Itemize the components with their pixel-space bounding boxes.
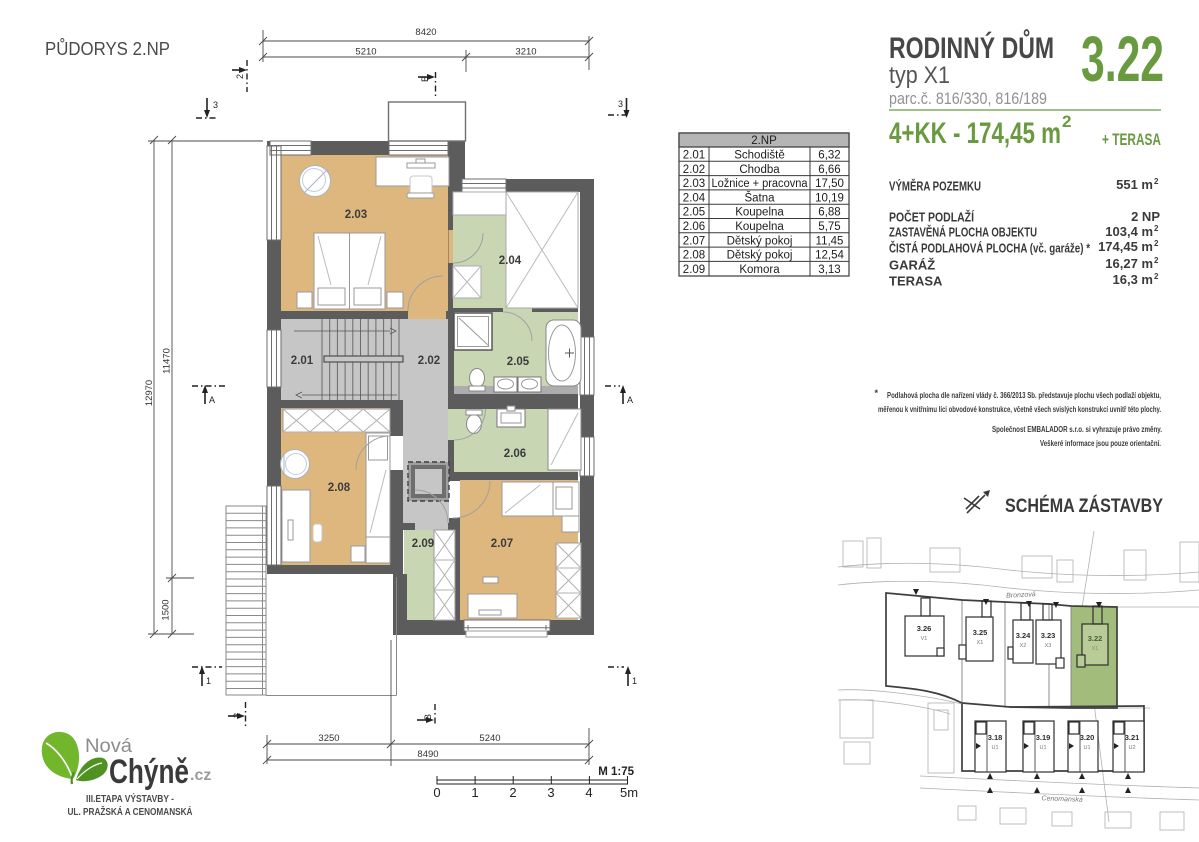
svg-text:U2: U2 bbox=[1128, 745, 1135, 751]
svg-text:VÝMĚRA POZEMKU: VÝMĚRA POZEMKU bbox=[889, 179, 981, 194]
svg-text:2.08: 2.08 bbox=[328, 482, 351, 494]
svg-text:2.08: 2.08 bbox=[683, 250, 705, 262]
svg-text:3.19: 3.19 bbox=[1036, 733, 1051, 742]
svg-text:SCHÉMA ZÁSTAVBY: SCHÉMA ZÁSTAVBY bbox=[1005, 495, 1163, 517]
svg-text:Veškeré informace jsou pouze o: Veškeré informace jsou pouze orientační. bbox=[1040, 439, 1161, 448]
svg-text:3.23: 3.23 bbox=[1041, 631, 1056, 640]
svg-text:3210: 3210 bbox=[515, 47, 536, 58]
svg-text:Dětský pokoj: Dětský pokoj bbox=[727, 250, 793, 262]
svg-text:11470: 11470 bbox=[162, 348, 173, 374]
svg-text:U1: U1 bbox=[1083, 745, 1090, 751]
svg-text:Společnost EMBALADOR s.r.o. si: Společnost EMBALADOR s.r.o. si vyhrazuje… bbox=[992, 425, 1162, 434]
svg-text:5,75: 5,75 bbox=[818, 221, 840, 233]
svg-text:ZASTAVĚNÁ PLOCHA OBJEKTU: ZASTAVĚNÁ PLOCHA OBJEKTU bbox=[889, 225, 1037, 240]
svg-text:B: B bbox=[420, 76, 430, 82]
svg-text:měřenou k vnitřnímu líci obvod: měřenou k vnitřnímu líci obvodové konstr… bbox=[878, 405, 1161, 414]
svg-text:0: 0 bbox=[433, 785, 440, 800]
svg-text:3.18: 3.18 bbox=[988, 733, 1003, 742]
svg-text:5m: 5m bbox=[620, 785, 638, 800]
svg-text:2.NP: 2.NP bbox=[751, 135, 777, 147]
svg-text:2.01: 2.01 bbox=[683, 150, 705, 162]
svg-text:2: 2 bbox=[232, 713, 242, 718]
svg-text:8420: 8420 bbox=[415, 27, 436, 38]
svg-text:3: 3 bbox=[213, 100, 218, 110]
svg-text:ČISTÁ PODLAHOVÁ PLOCHA (vč. ga: ČISTÁ PODLAHOVÁ PLOCHA (vč. garáže) * bbox=[889, 241, 1091, 256]
svg-text:Komora: Komora bbox=[739, 264, 780, 276]
svg-text:16,3 m: 16,3 m bbox=[1113, 272, 1153, 287]
svg-text:A: A bbox=[209, 395, 215, 405]
svg-text:3: 3 bbox=[618, 99, 623, 109]
svg-text:Podlahová plocha dle nařízení: Podlahová plocha dle nařízení vlády č. 3… bbox=[887, 391, 1161, 400]
svg-text:8490: 8490 bbox=[417, 749, 438, 760]
svg-text:1: 1 bbox=[206, 676, 211, 686]
svg-text:5240: 5240 bbox=[479, 733, 500, 744]
svg-text:X1: X1 bbox=[977, 640, 984, 646]
svg-text:1: 1 bbox=[471, 785, 478, 800]
svg-text:parc.č. 816/330, 816/189: parc.č. 816/330, 816/189 bbox=[889, 89, 1047, 108]
svg-text:Cenomanská: Cenomanská bbox=[1041, 795, 1083, 803]
svg-text:2.06: 2.06 bbox=[683, 221, 705, 233]
svg-text:U1: U1 bbox=[1039, 745, 1046, 751]
svg-text:3,13: 3,13 bbox=[818, 264, 840, 276]
svg-text:2.04: 2.04 bbox=[499, 255, 522, 267]
svg-text:U1: U1 bbox=[991, 745, 998, 751]
svg-text:4: 4 bbox=[585, 785, 592, 800]
svg-text:Ložnice + pracovna: Ložnice + pracovna bbox=[712, 178, 809, 190]
svg-text:2: 2 bbox=[509, 785, 516, 800]
svg-text:GARÁŽ: GARÁŽ bbox=[889, 258, 935, 273]
svg-text:III.ETAPA VÝSTAVBY -: III.ETAPA VÝSTAVBY - bbox=[86, 792, 174, 805]
svg-text:3.22: 3.22 bbox=[1088, 634, 1103, 643]
svg-text:2.06: 2.06 bbox=[504, 448, 526, 460]
svg-text:X3: X3 bbox=[1045, 643, 1052, 649]
svg-text:2: 2 bbox=[1154, 256, 1159, 265]
svg-text:2 NP: 2 NP bbox=[1131, 209, 1160, 224]
svg-text:5210: 5210 bbox=[355, 47, 376, 58]
svg-text:174,45 m: 174,45 m bbox=[1098, 239, 1153, 254]
svg-text:12,54: 12,54 bbox=[815, 250, 844, 262]
svg-text:1500: 1500 bbox=[161, 599, 172, 620]
svg-text:551 m: 551 m bbox=[1116, 177, 1153, 192]
svg-text:typ X1: typ X1 bbox=[889, 62, 950, 89]
svg-text:+ TERASA: + TERASA bbox=[1102, 130, 1161, 149]
svg-text:3.26: 3.26 bbox=[917, 624, 932, 633]
svg-text:2.03: 2.03 bbox=[683, 178, 705, 190]
svg-text:X1: X1 bbox=[1092, 646, 1099, 652]
svg-text:2: 2 bbox=[1154, 177, 1159, 186]
svg-text:4+KK - 174,45 m: 4+KK - 174,45 m bbox=[889, 117, 1061, 150]
svg-text:V1: V1 bbox=[921, 636, 928, 642]
svg-text:.cz: .cz bbox=[190, 767, 211, 784]
svg-text:103,4 m: 103,4 m bbox=[1105, 224, 1153, 239]
svg-text:2.01: 2.01 bbox=[291, 355, 314, 367]
svg-text:16,27 m: 16,27 m bbox=[1105, 256, 1153, 271]
svg-text:Koupelna: Koupelna bbox=[735, 207, 784, 219]
svg-text:10,19: 10,19 bbox=[815, 192, 844, 204]
svg-text:6,32: 6,32 bbox=[818, 150, 840, 162]
svg-text:Chodba: Chodba bbox=[739, 164, 780, 176]
svg-text:2: 2 bbox=[235, 74, 245, 79]
svg-text:2.09: 2.09 bbox=[683, 264, 705, 276]
svg-text:B: B bbox=[423, 714, 433, 720]
svg-text:Schodiště: Schodiště bbox=[734, 150, 785, 162]
svg-text:6,66: 6,66 bbox=[818, 164, 840, 176]
svg-text:X2: X2 bbox=[1020, 643, 1027, 649]
svg-text:2.07: 2.07 bbox=[683, 235, 705, 247]
svg-text:PŮDORYS 2.NP: PŮDORYS 2.NP bbox=[45, 38, 170, 59]
svg-text:Koupelna: Koupelna bbox=[735, 221, 784, 233]
svg-text:TERASA: TERASA bbox=[889, 274, 943, 289]
svg-text:2.09: 2.09 bbox=[412, 538, 434, 550]
svg-text:*: * bbox=[874, 388, 878, 398]
svg-text:1: 1 bbox=[632, 676, 637, 686]
svg-text:2.04: 2.04 bbox=[683, 192, 706, 204]
svg-text:2: 2 bbox=[1062, 112, 1071, 131]
svg-text:3.20: 3.20 bbox=[1080, 733, 1095, 742]
svg-text:UL. PRAŽSKÁ A CENOMANSKÁ: UL. PRAŽSKÁ A CENOMANSKÁ bbox=[68, 805, 193, 818]
svg-text:2: 2 bbox=[1154, 224, 1159, 233]
svg-text:M 1:75: M 1:75 bbox=[598, 766, 634, 778]
svg-text:3: 3 bbox=[547, 785, 554, 800]
svg-text:3.21: 3.21 bbox=[1125, 733, 1140, 742]
svg-text:11,45: 11,45 bbox=[816, 235, 844, 247]
svg-text:RODINNÝ DŮM: RODINNÝ DŮM bbox=[889, 29, 1054, 65]
svg-text:Šatna: Šatna bbox=[744, 191, 775, 204]
svg-text:A: A bbox=[627, 395, 633, 405]
svg-text:Chýně: Chýně bbox=[109, 753, 189, 791]
svg-text:3250: 3250 bbox=[318, 733, 339, 744]
svg-text:17,50: 17,50 bbox=[815, 178, 844, 190]
svg-text:POČET PODLAŽÍ: POČET PODLAŽÍ bbox=[889, 210, 974, 225]
svg-text:2.05: 2.05 bbox=[507, 356, 530, 368]
svg-text:2: 2 bbox=[1154, 272, 1159, 281]
svg-text:3.22: 3.22 bbox=[1081, 23, 1164, 95]
svg-text:3.25: 3.25 bbox=[973, 628, 988, 637]
svg-text:2.07: 2.07 bbox=[491, 538, 513, 550]
svg-text:2: 2 bbox=[1154, 239, 1159, 248]
svg-text:6,88: 6,88 bbox=[818, 207, 840, 219]
svg-text:12970: 12970 bbox=[144, 380, 155, 406]
svg-text:2.02: 2.02 bbox=[418, 355, 440, 367]
svg-text:2.03: 2.03 bbox=[345, 209, 367, 221]
svg-text:2.02: 2.02 bbox=[683, 164, 705, 176]
svg-text:3.24: 3.24 bbox=[1016, 631, 1031, 640]
svg-text:Dětský pokoj: Dětský pokoj bbox=[727, 235, 793, 247]
svg-text:2.05: 2.05 bbox=[683, 207, 705, 219]
